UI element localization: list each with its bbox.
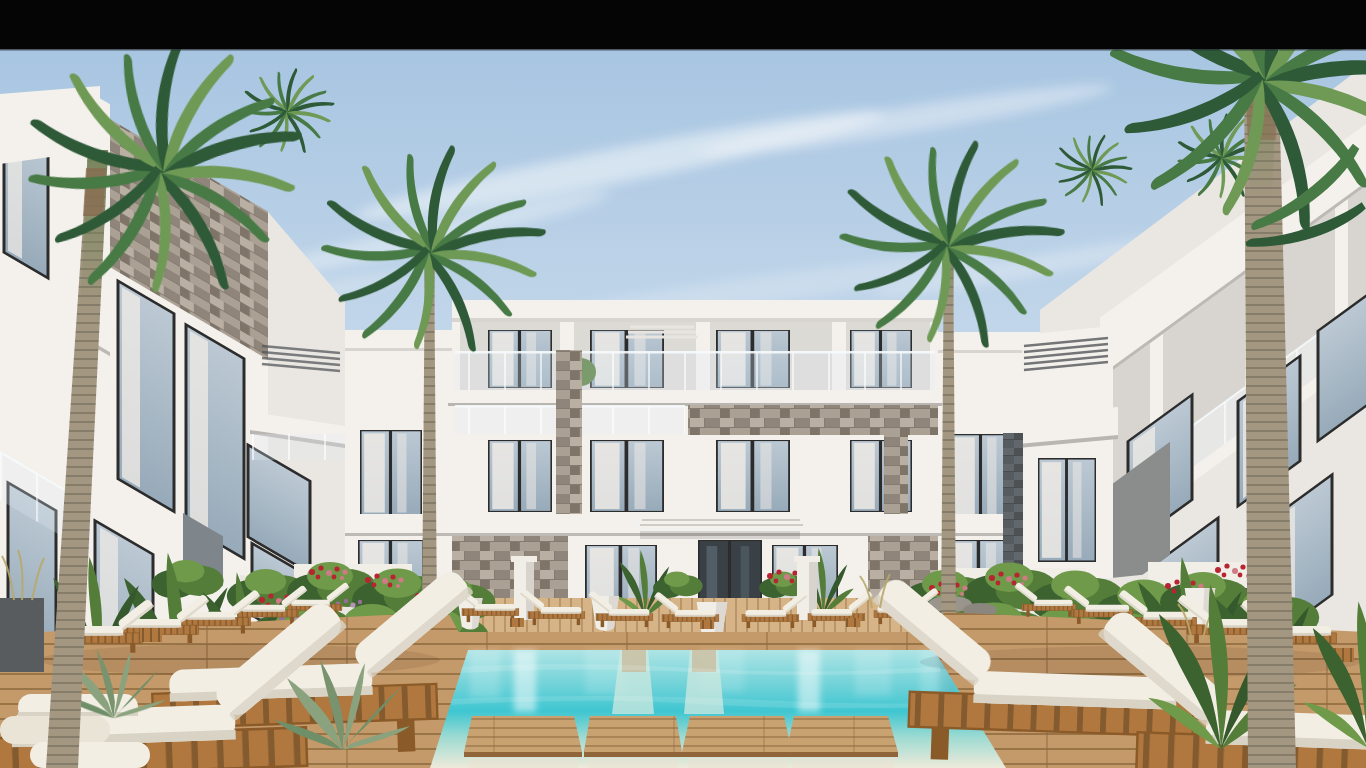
letterbox-top — [0, 0, 1366, 49]
pool-coping — [418, 632, 972, 650]
side-table — [700, 620, 714, 629]
resort-rendering — [0, 0, 1366, 768]
side-table — [846, 618, 860, 627]
stone-pillar-left — [556, 350, 582, 536]
side-table — [140, 628, 162, 642]
rendered-scene — [0, 0, 1366, 768]
pergola-slats — [626, 327, 698, 337]
dark-planter — [0, 598, 44, 672]
third-floor — [455, 322, 935, 390]
letterbox-edge — [0, 49, 1366, 51]
entrance-canopy — [630, 516, 808, 539]
glass-balustrade — [455, 352, 935, 390]
side-table — [510, 618, 524, 627]
